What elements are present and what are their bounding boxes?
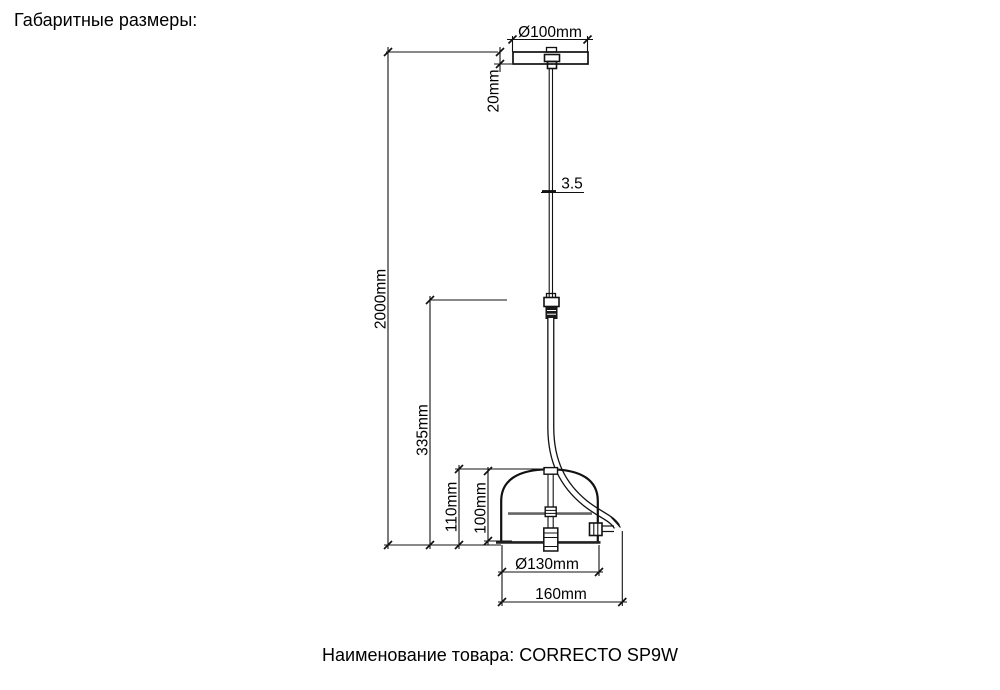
overall-drop-label: 2000mm xyxy=(373,269,390,329)
shade-diameter-label: Ø130mm xyxy=(515,556,579,573)
stem-and-arm xyxy=(551,318,621,532)
stem-length-label: 335mm xyxy=(415,404,432,456)
dim-shade-inner-height: 100mm xyxy=(473,467,513,545)
lamp-socket xyxy=(544,528,558,551)
shade-inner-height-label: 100mm xyxy=(473,482,490,534)
rod-mid-collar xyxy=(545,507,556,517)
cable-connector xyxy=(544,294,559,319)
ceiling-canopy xyxy=(513,48,588,69)
shade-outer-height-label: 110mm xyxy=(444,482,461,533)
dim-stem-length: 335mm xyxy=(415,296,508,549)
fixture-width-label: 160mm xyxy=(535,586,587,603)
rod-top-cap xyxy=(544,468,558,475)
cable-diameter-label: 3.5 xyxy=(561,176,583,193)
dim-canopy-height: 20mm xyxy=(486,47,513,113)
dim-shade-outer-height: 110mm xyxy=(444,465,546,549)
dim-cable-diameter: 3.5 xyxy=(541,176,584,193)
product-name-label: Наименование товара: CORRECTO SP9W xyxy=(322,645,678,665)
canopy-diameter-label: Ø100mm xyxy=(518,24,582,41)
suspension-cable xyxy=(549,69,552,298)
dim-overall-drop: 2000mm xyxy=(373,47,499,549)
page-title: Габаритные размеры: xyxy=(14,10,197,30)
technical-drawing-page: Габаритные размеры: Наименование товара:… xyxy=(0,0,1000,690)
canopy-height-label: 20mm xyxy=(486,69,503,112)
side-joint-knob xyxy=(590,523,603,536)
dimension-drawing: Габаритные размеры: Наименование товара:… xyxy=(0,0,1000,690)
lamp-rod-assembly xyxy=(544,468,558,551)
